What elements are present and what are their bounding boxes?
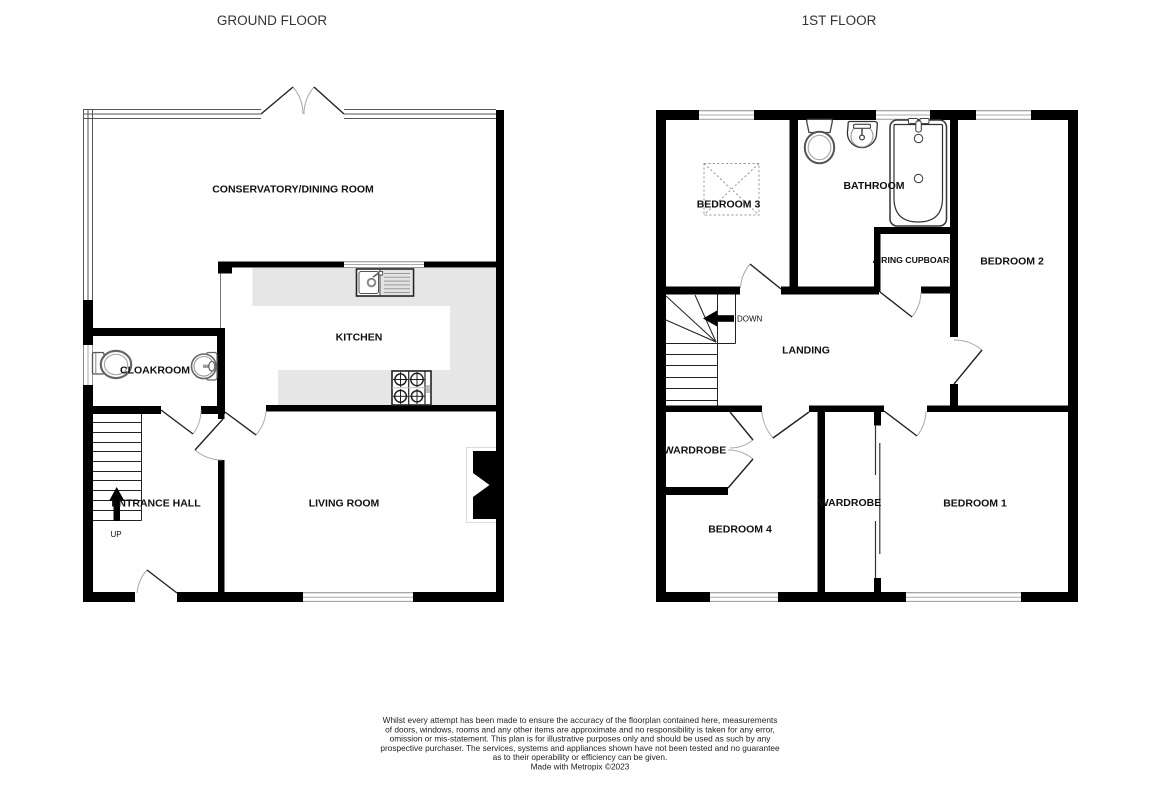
- svg-text:WARDROBE: WARDROBE: [819, 497, 881, 509]
- svg-text:CLOAKROOM: CLOAKROOM: [120, 365, 190, 377]
- svg-text:WARDROBE: WARDROBE: [664, 445, 726, 457]
- svg-text:CONSERVATORY/DINING ROOM: CONSERVATORY/DINING ROOM: [212, 184, 374, 196]
- svg-text:GROUND FLOOR: GROUND FLOOR: [217, 13, 328, 28]
- svg-text:BEDROOM 1: BEDROOM 1: [943, 498, 1007, 510]
- svg-text:KITCHEN: KITCHEN: [336, 332, 383, 344]
- svg-text:BATHROOM: BATHROOM: [843, 180, 904, 192]
- svg-text:ENTRANCE HALL: ENTRANCE HALL: [111, 498, 201, 510]
- svg-text:BEDROOM 4: BEDROOM 4: [708, 524, 772, 536]
- svg-text:BEDROOM 2: BEDROOM 2: [980, 256, 1044, 268]
- svg-text:DOWN: DOWN: [737, 315, 763, 324]
- svg-text:AIRING CUPBOARD: AIRING CUPBOARD: [872, 255, 955, 265]
- svg-text:LIVING ROOM: LIVING ROOM: [309, 498, 380, 510]
- svg-text:UP: UP: [110, 530, 121, 539]
- svg-text:Made with Metropix ©2023: Made with Metropix ©2023: [531, 762, 630, 772]
- svg-text:BEDROOM 3: BEDROOM 3: [697, 199, 761, 211]
- svg-text:LANDING: LANDING: [782, 345, 830, 357]
- svg-text:1ST FLOOR: 1ST FLOOR: [802, 13, 877, 28]
